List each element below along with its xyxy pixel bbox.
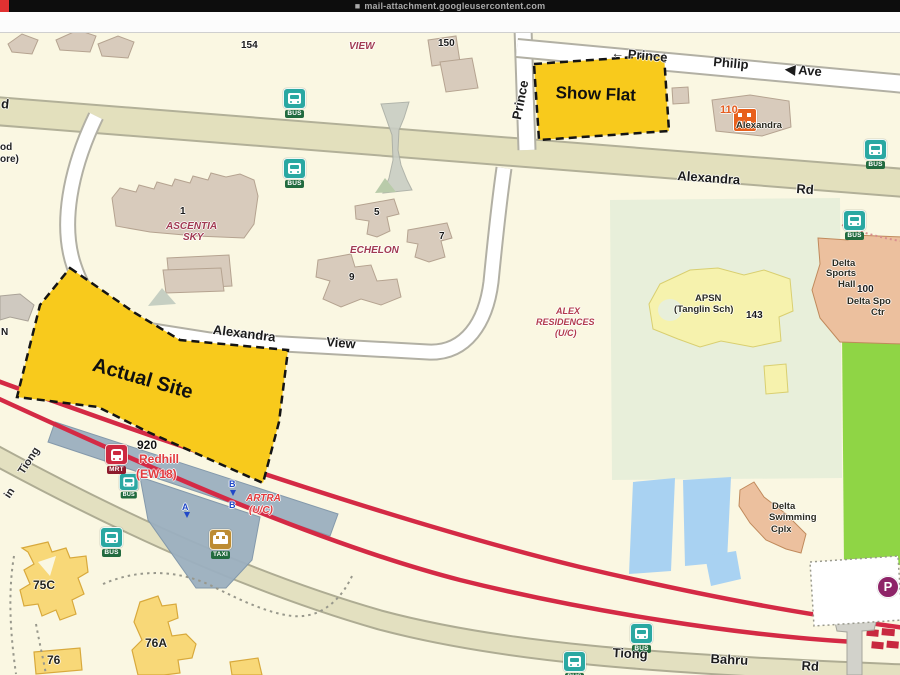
- map-label-ew18: (EW18): [136, 467, 177, 481]
- map-label-show-flat: Show Flat: [555, 83, 636, 106]
- map-label-7: 7: [439, 231, 445, 242]
- map-label-rd: Rd: [796, 181, 814, 197]
- map-label-100: 100: [857, 284, 874, 295]
- taxi-glyph: [213, 535, 228, 544]
- map-label-tanglin-sch: (Tanglin Sch): [674, 304, 733, 315]
- map-label-echelon: ECHELON: [350, 245, 399, 256]
- map-label-apsn: APSN: [695, 293, 721, 304]
- parking-icon: P: [877, 576, 899, 598]
- bus-label: BUS: [121, 492, 137, 499]
- mrt-label: MRT: [107, 466, 126, 474]
- browser-chrome: [0, 12, 900, 33]
- map-label-b: B: [229, 500, 236, 510]
- recording-indicator-icon: [0, 0, 9, 12]
- url-bar[interactable]: ■ mail-attachment.googleusercontent.com: [355, 1, 546, 11]
- bus-label: BUS: [285, 180, 303, 188]
- map-label-b: B: [229, 479, 236, 489]
- taxi-icon: TAXI: [209, 529, 232, 559]
- bus-glyph: [105, 532, 118, 543]
- map-label-sports: Sports: [826, 268, 856, 279]
- map-label-od: od: [0, 142, 12, 153]
- map-label-residences: RESIDENCES: [536, 317, 595, 327]
- map-label-d: d: [0, 96, 9, 112]
- bus-label: BUS: [845, 232, 863, 240]
- bus-glyph: [123, 477, 134, 486]
- map-label-view: VIEW: [349, 41, 375, 52]
- map-label-u-c: (U/C): [249, 505, 273, 516]
- map-label-143: 143: [746, 310, 763, 321]
- map-label-ascentia: ASCENTIA: [166, 221, 217, 232]
- map-label-920: 920: [137, 438, 157, 452]
- bus-icon: BUS: [563, 651, 586, 675]
- map-label-sky: SKY: [183, 232, 204, 243]
- map-label-ore: ore): [0, 154, 19, 165]
- map-label-artra: ARTRA: [246, 493, 281, 504]
- map-label-swimming: Swimming: [769, 512, 817, 523]
- bus-glyph: [568, 656, 581, 667]
- bus-icon: BUS: [283, 158, 306, 188]
- bus-glyph: [288, 93, 301, 104]
- map-canvas: BUSBUSBUSBUSBUSBUSBUSBUSMRTTAXIP 154VIEW…: [0, 0, 900, 675]
- mrt-glyph: [111, 449, 123, 461]
- map-label-76: 76: [47, 653, 60, 667]
- map-label-philip: Philip: [713, 54, 750, 72]
- map-label-redhill: Redhill: [139, 452, 179, 466]
- map-label-alexandra: Alexandra: [736, 120, 782, 131]
- map-label-ave: ◀ Ave: [785, 61, 823, 80]
- bus-glyph: [869, 144, 882, 155]
- screenshot-root: BUSBUSBUSBUSBUSBUSBUSBUSMRTTAXIP 154VIEW…: [0, 0, 900, 675]
- sports-field: [842, 328, 900, 567]
- map-label-rd: Rd: [801, 658, 819, 674]
- map-label-u-c: (U/C): [555, 328, 577, 338]
- bus-icon: BUS: [864, 139, 887, 169]
- bus-label: BUS: [102, 549, 120, 557]
- map-label-delta: Delta: [772, 501, 795, 512]
- map-label-bahru: Bahru: [710, 651, 748, 668]
- bus-glyph: [288, 163, 301, 174]
- browser-topbar: ■ mail-attachment.googleusercontent.com: [0, 0, 900, 12]
- map-label-cplx: Cplx: [771, 524, 792, 535]
- bus-icon: BUS: [283, 88, 306, 118]
- map-label-view: View: [326, 334, 357, 352]
- map-label-1: 1: [180, 206, 186, 217]
- map-label-110: 110: [720, 104, 738, 116]
- parking-glyph: P: [877, 576, 899, 598]
- bus-glyph: [635, 628, 648, 639]
- map-label-76a: 76A: [145, 636, 167, 650]
- map-label-5: 5: [374, 207, 380, 218]
- url-text: mail-attachment.googleusercontent.com: [364, 1, 545, 11]
- map-drawing: [0, 0, 900, 675]
- map-label-75c: 75C: [33, 578, 55, 592]
- mrt-icon: MRT: [105, 444, 128, 474]
- map-label-154: 154: [241, 40, 258, 51]
- map-label-a: A: [182, 502, 189, 512]
- map-label-alex: ALEX: [556, 306, 580, 316]
- bus-glyph: [848, 215, 861, 226]
- map-label-150: 150: [438, 38, 455, 49]
- taxi-label: TAXI: [211, 551, 230, 559]
- map-label-ctr: Ctr: [871, 307, 885, 318]
- map-label-hall: Hall: [838, 279, 855, 290]
- url-prefix-icon: ■: [355, 1, 361, 11]
- bus-icon: BUS: [843, 210, 866, 240]
- bus-label: BUS: [866, 161, 884, 169]
- map-label-tiong: Tiong: [612, 645, 648, 662]
- map-label-delta-spo: Delta Spo: [847, 296, 891, 307]
- map-label-n: N: [1, 327, 8, 338]
- bus-label: BUS: [285, 110, 303, 118]
- bus-icon: BUS: [100, 527, 123, 557]
- map-label-9: 9: [349, 272, 355, 283]
